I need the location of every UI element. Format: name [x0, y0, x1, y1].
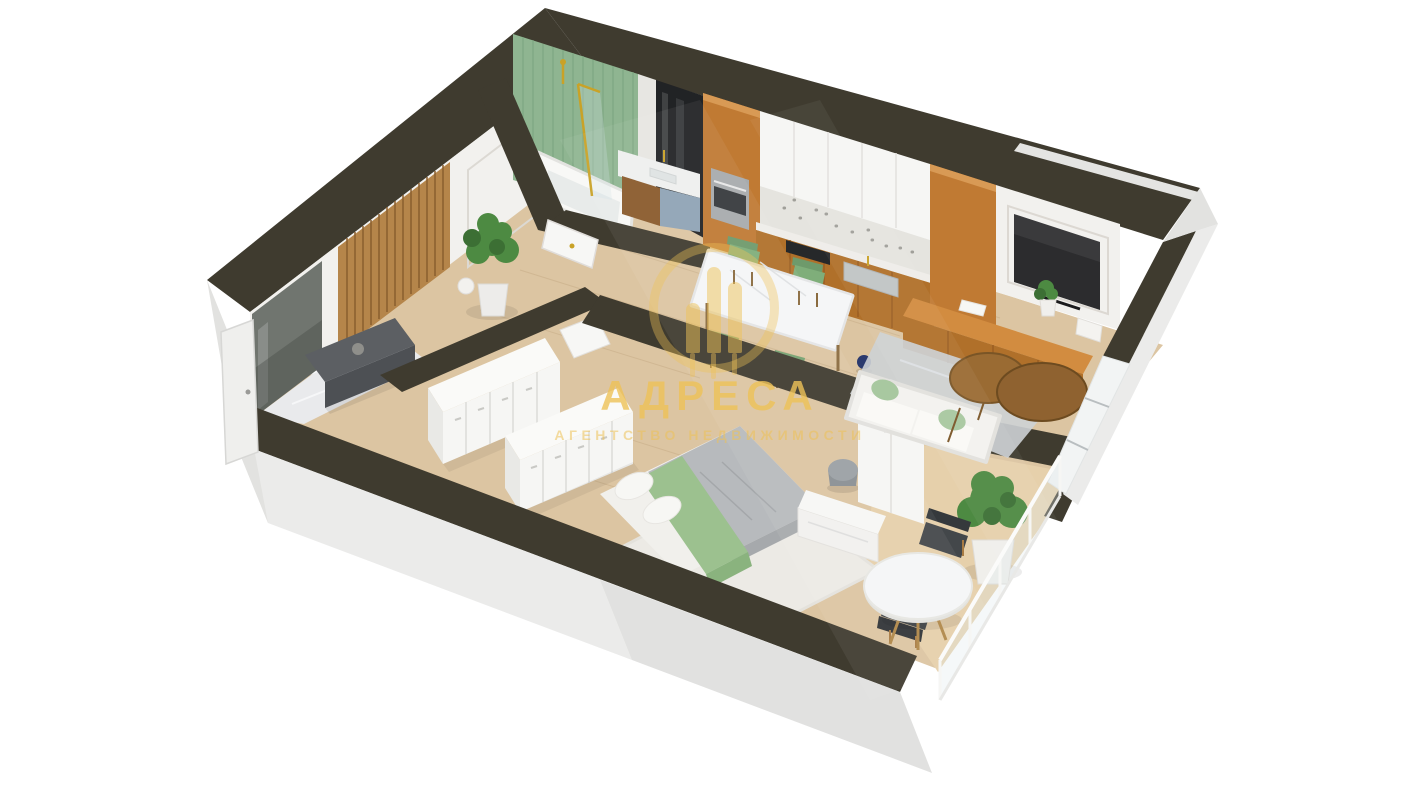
floor-plan-render: [0, 0, 1422, 800]
entrance-door: [221, 320, 258, 464]
stone-decor: [352, 343, 364, 355]
white-vase: [458, 278, 474, 294]
floor-plan-page: АДРЕСА АГЕНТСТВО НЕДВИЖИМОСТИ: [0, 0, 1422, 800]
round-coffee-table: [997, 363, 1087, 421]
entrance-door-handle: [246, 390, 251, 395]
plant-pot: [478, 284, 508, 316]
door-handle: [570, 244, 575, 249]
shower-head: [560, 59, 566, 65]
